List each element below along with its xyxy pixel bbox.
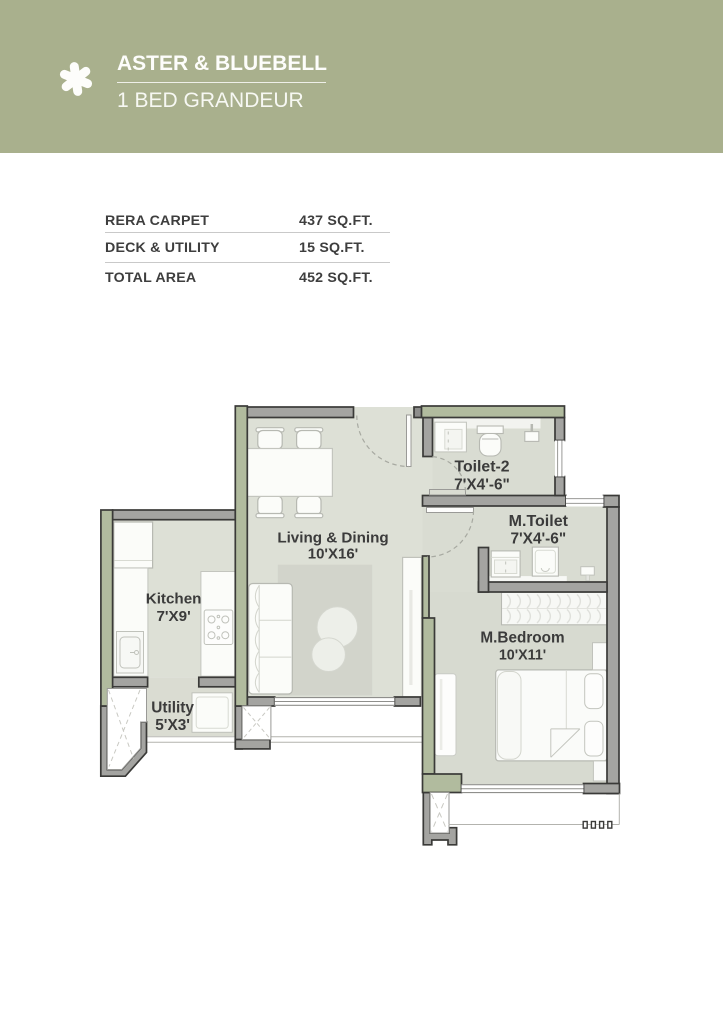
svg-text:M.Toilet: M.Toilet [509, 513, 569, 530]
svg-text:7'X4'-6": 7'X4'-6" [510, 531, 566, 548]
svg-text:M.Bedroom: M.Bedroom [480, 630, 564, 647]
svg-text:Kitchen: Kitchen [146, 590, 202, 607]
svg-text:5'X3': 5'X3' [155, 717, 190, 734]
svg-text:7'X4'-6": 7'X4'-6" [454, 476, 510, 493]
svg-text:Utility: Utility [151, 700, 194, 717]
svg-text:7'X9': 7'X9' [156, 608, 190, 625]
svg-text:Living & Dining: Living & Dining [277, 530, 388, 547]
svg-text:10'X11': 10'X11' [499, 648, 546, 664]
svg-text:10'X16': 10'X16' [308, 546, 359, 563]
svg-text:Toilet-2: Toilet-2 [455, 459, 510, 476]
